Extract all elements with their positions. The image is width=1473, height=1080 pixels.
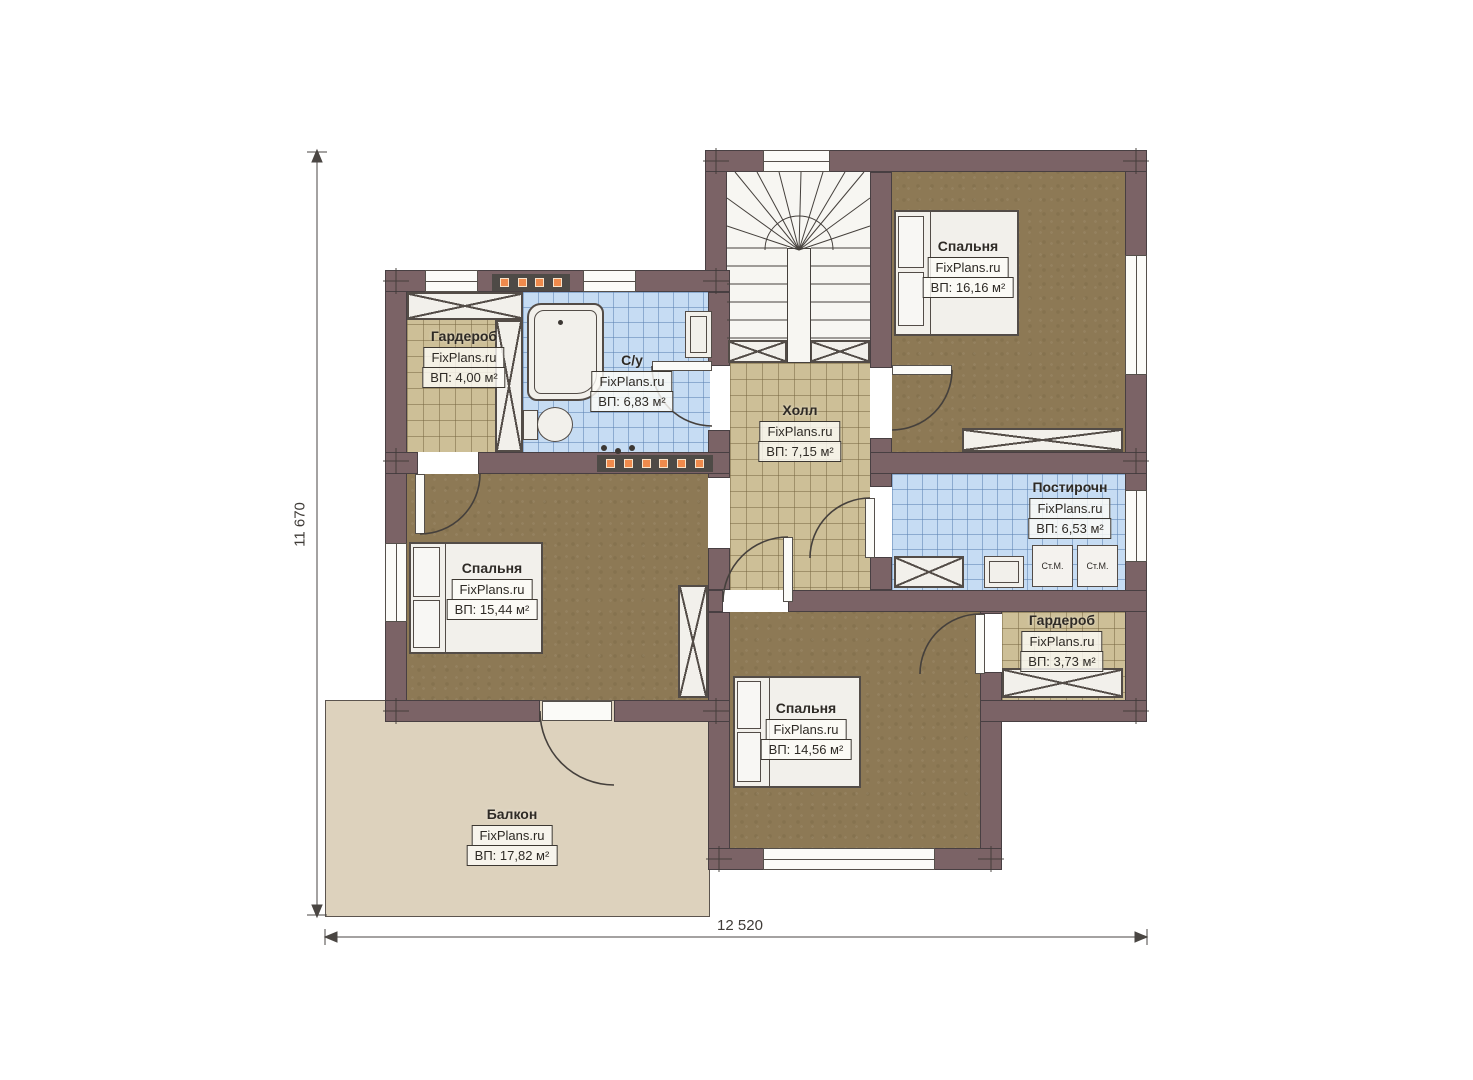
watermark-label: FixPlans.ru [1021,631,1102,652]
cabinet [894,556,964,588]
pillow [413,600,440,648]
cabinet [962,428,1123,452]
watermark-label: FixPlans.ru [591,371,672,392]
wall [385,452,418,474]
hall-floor [730,363,870,590]
heat-dot [518,278,527,287]
stair-newel [787,248,811,363]
window [1125,490,1147,562]
washing-machine: Ст.М. [1077,545,1118,587]
room-area-label: ВП: 14,56 м² [761,739,852,760]
window [385,543,407,622]
washing-machine-label: Ст.М. [1086,561,1108,571]
heat-dot [695,459,704,468]
wall [708,548,730,590]
cabinet [1002,668,1123,698]
stair-break-right [810,340,870,363]
wall [870,172,892,368]
room-label-bedroom-bottom: Спальня FixPlans.ru ВП: 14,56 м² [761,700,852,760]
watermark-label: FixPlans.ru [471,825,552,846]
room-label-bathroom: С/у FixPlans.ru ВП: 6,83 м² [590,352,673,412]
pillow [737,732,761,782]
door-leaf [542,701,612,721]
room-name: С/у [621,352,643,368]
wall [708,612,730,870]
heated-floor-strip [597,455,713,472]
pillow [898,216,924,268]
room-label-bedroom-top-right: Спальня FixPlans.ru ВП: 16,16 м² [923,238,1014,298]
toilet [537,407,573,442]
pillow [413,547,440,597]
room-area-label: ВП: 6,83 м² [590,391,673,412]
room-area-label: ВП: 6,53 м² [1028,518,1111,539]
dimension-width-label: 12 520 [695,917,785,934]
laundry-sink [984,556,1024,588]
toilet-tank [523,410,538,440]
room-label-wardrobe-top: Гардероб FixPlans.ru ВП: 4,00 м² [422,328,505,388]
door-leaf [783,537,793,602]
room-name: Постирочн [1032,479,1107,495]
watermark-label: FixPlans.ru [1029,498,1110,519]
room-name: Спальня [938,238,998,254]
wall [980,700,1147,722]
wall [870,557,892,590]
window [763,150,830,172]
watermark-label: FixPlans.ru [423,347,504,368]
stair-break-left [728,340,787,363]
window [425,270,478,292]
washing-machine-label: Ст.М. [1041,561,1063,571]
bath-accessory [601,445,607,451]
room-name: Спальня [776,700,836,716]
room-area-label: ВП: 15,44 м² [447,599,538,620]
room-name: Холл [782,402,817,418]
heat-dot [624,459,633,468]
heat-dot [606,459,615,468]
wall [614,700,730,722]
room-name: Балкон [487,806,538,822]
heat-dot [677,459,686,468]
room-label-hall: Холл FixPlans.ru ВП: 7,15 м² [758,402,841,462]
room-area-label: ВП: 3,73 м² [1020,651,1103,672]
window [583,270,636,292]
bath-accessory [615,448,621,454]
room-label-balcony: Балкон FixPlans.ru ВП: 17,82 м² [467,806,558,866]
wall [385,270,407,722]
pillow [898,272,924,326]
wall [1125,150,1147,722]
room-label-laundry: Постирочн FixPlans.ru ВП: 6,53 м² [1028,479,1111,539]
heated-floor-strip [492,274,570,291]
wall [788,590,1147,612]
room-name: Гардероб [431,328,497,344]
door-leaf [975,614,985,674]
heat-dot [642,459,651,468]
room-area-label: ВП: 16,16 м² [923,277,1014,298]
room-name: Спальня [462,560,522,576]
door-leaf [865,498,875,558]
floor-plan: Ст.М. Ст.М. [0,0,1473,1080]
wall [708,590,723,612]
dimension-height-label: 11 670 [292,485,309,565]
window [763,848,935,870]
wall [870,452,1147,474]
heat-dot [553,278,562,287]
room-area-label: ВП: 7,15 м² [758,441,841,462]
washing-machine: Ст.М. [1032,545,1073,587]
door-leaf [415,474,425,534]
heat-dot [500,278,509,287]
room-name: Гардероб [1029,612,1095,628]
door-leaf [892,365,952,375]
cabinet [407,292,523,320]
room-label-wardrobe-right: Гардероб FixPlans.ru ВП: 3,73 м² [1020,612,1103,672]
pillow [737,681,761,729]
heat-dot [535,278,544,287]
room-label-bedroom-left: Спальня FixPlans.ru ВП: 15,44 м² [447,560,538,620]
washbasin [685,311,712,358]
watermark-label: FixPlans.ru [759,421,840,442]
bath-accessory [629,445,635,451]
bathtub-drain [558,320,563,325]
cabinet [678,585,708,698]
wall [385,700,540,722]
room-area-label: ВП: 17,82 м² [467,845,558,866]
watermark-label: FixPlans.ru [451,579,532,600]
room-area-label: ВП: 4,00 м² [422,367,505,388]
watermark-label: FixPlans.ru [927,257,1008,278]
window [1125,255,1147,375]
heat-dot [659,459,668,468]
watermark-label: FixPlans.ru [765,719,846,740]
